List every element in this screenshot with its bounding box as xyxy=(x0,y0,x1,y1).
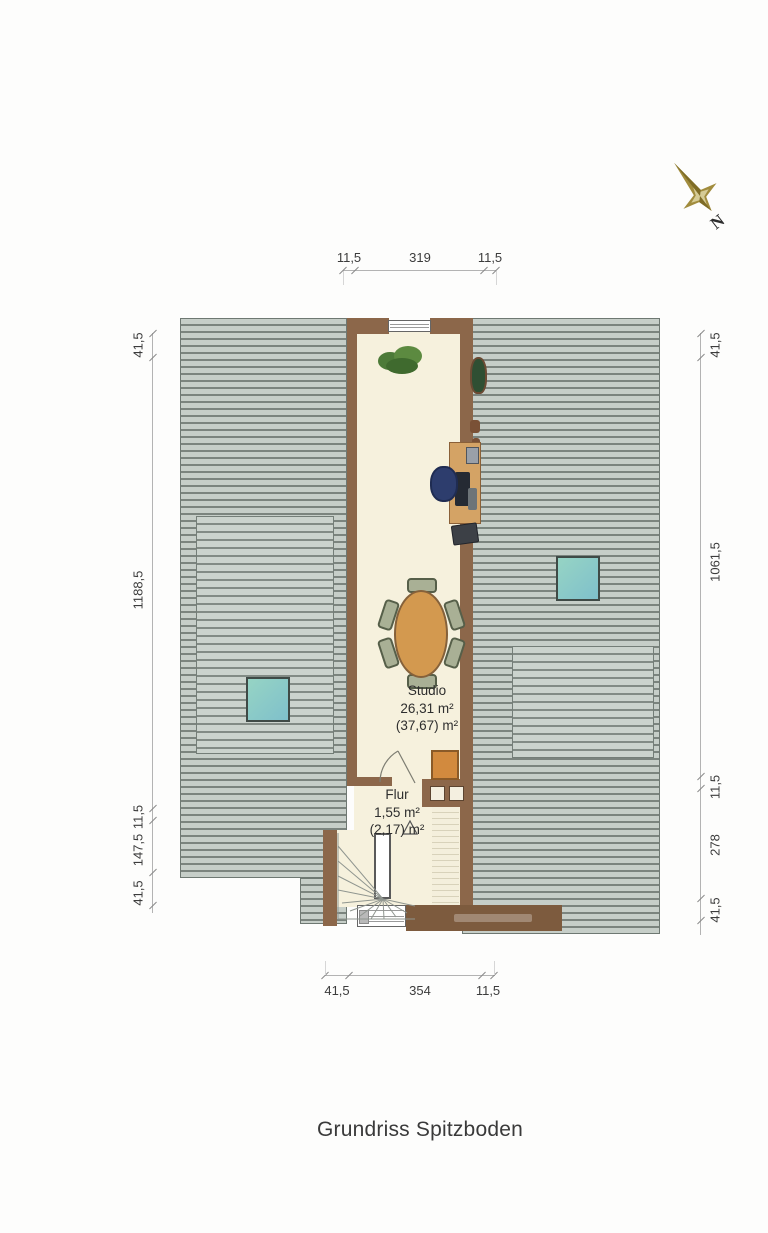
stair-newel-wall xyxy=(374,833,391,899)
dim-tick xyxy=(149,869,157,877)
window-bottom-handle xyxy=(359,910,369,924)
flur-room-label: Flur 1,55 m² (2,17) m² xyxy=(347,786,447,839)
printer-icon xyxy=(451,522,480,545)
dim-tick xyxy=(697,330,705,338)
wall-top-right xyxy=(430,318,473,334)
dim-label: 1188,5 xyxy=(131,555,146,625)
floor-plan-page: N Studio 26,31 m² (37,67) m² Flur 1,55 m… xyxy=(0,0,768,1233)
watermark-strip xyxy=(454,914,532,922)
dim-extension xyxy=(496,271,497,285)
roof-area-right xyxy=(462,318,660,934)
dim-tick xyxy=(697,785,705,793)
studio-room-label: Studio 26,31 m² (37,67) m² xyxy=(377,682,477,735)
dim-label: 11,5 xyxy=(460,250,520,265)
roof-area-right-inner xyxy=(512,646,654,758)
desk-gadget xyxy=(466,447,479,464)
office-chair-icon xyxy=(430,466,458,502)
plant-icon xyxy=(378,346,424,376)
dim-line-top xyxy=(343,270,496,271)
dim-line-left xyxy=(152,333,153,913)
room-area-net: 1,55 m² xyxy=(347,804,447,822)
compass-north-label: N xyxy=(707,210,729,233)
room-area-net: 26,31 m² xyxy=(377,700,477,718)
dim-label: 354 xyxy=(390,983,450,998)
wall-bottom-band xyxy=(406,905,562,931)
wall-stair-bay xyxy=(323,830,337,926)
cabinet-orange xyxy=(431,750,459,780)
dim-tick xyxy=(149,354,157,362)
dim-tick xyxy=(149,902,157,910)
room-name: Flur xyxy=(347,786,447,804)
wall-plant-icon xyxy=(470,357,487,394)
dim-tick xyxy=(149,805,157,813)
dim-label: 11,5 xyxy=(458,983,518,998)
dim-tick xyxy=(697,773,705,781)
dim-tick xyxy=(149,330,157,338)
dim-label: 41,5 xyxy=(131,858,146,928)
skylight-window-left xyxy=(246,677,290,722)
dim-tick xyxy=(697,354,705,362)
dim-line-right xyxy=(700,333,701,935)
window-top xyxy=(388,320,431,332)
wall-hook-icon xyxy=(470,420,480,433)
skylight-window-right xyxy=(556,556,600,601)
dim-label: 11,5 xyxy=(319,250,379,265)
dim-label: 41,5 xyxy=(307,983,367,998)
dim-extension xyxy=(343,271,344,285)
chimney-flue xyxy=(449,786,464,801)
dim-label: 41,5 xyxy=(131,310,146,380)
dim-label: 41,5 xyxy=(708,875,723,945)
room-area-gross: (2,17) m² xyxy=(347,821,447,839)
page-title: Grundriss Spitzboden xyxy=(220,1118,620,1142)
desk-papers xyxy=(468,488,477,510)
dim-extension xyxy=(325,961,326,975)
dim-label: 319 xyxy=(390,250,450,265)
dim-label: 278 xyxy=(708,810,723,880)
dim-tick xyxy=(697,917,705,925)
dining-table xyxy=(394,590,448,678)
wall-top-left xyxy=(347,318,389,334)
wall-flur-divider xyxy=(347,777,392,786)
room-area-gross: (37,67) m² xyxy=(377,717,477,735)
dim-tick xyxy=(697,895,705,903)
dim-tick xyxy=(149,817,157,825)
dim-extension xyxy=(494,961,495,975)
wall-left xyxy=(347,318,357,783)
room-name: Studio xyxy=(377,682,477,700)
dim-label: 1061,5 xyxy=(708,527,723,597)
dim-label: 41,5 xyxy=(708,310,723,380)
dim-line-bottom xyxy=(325,975,495,976)
compass-star-icon xyxy=(658,150,729,224)
